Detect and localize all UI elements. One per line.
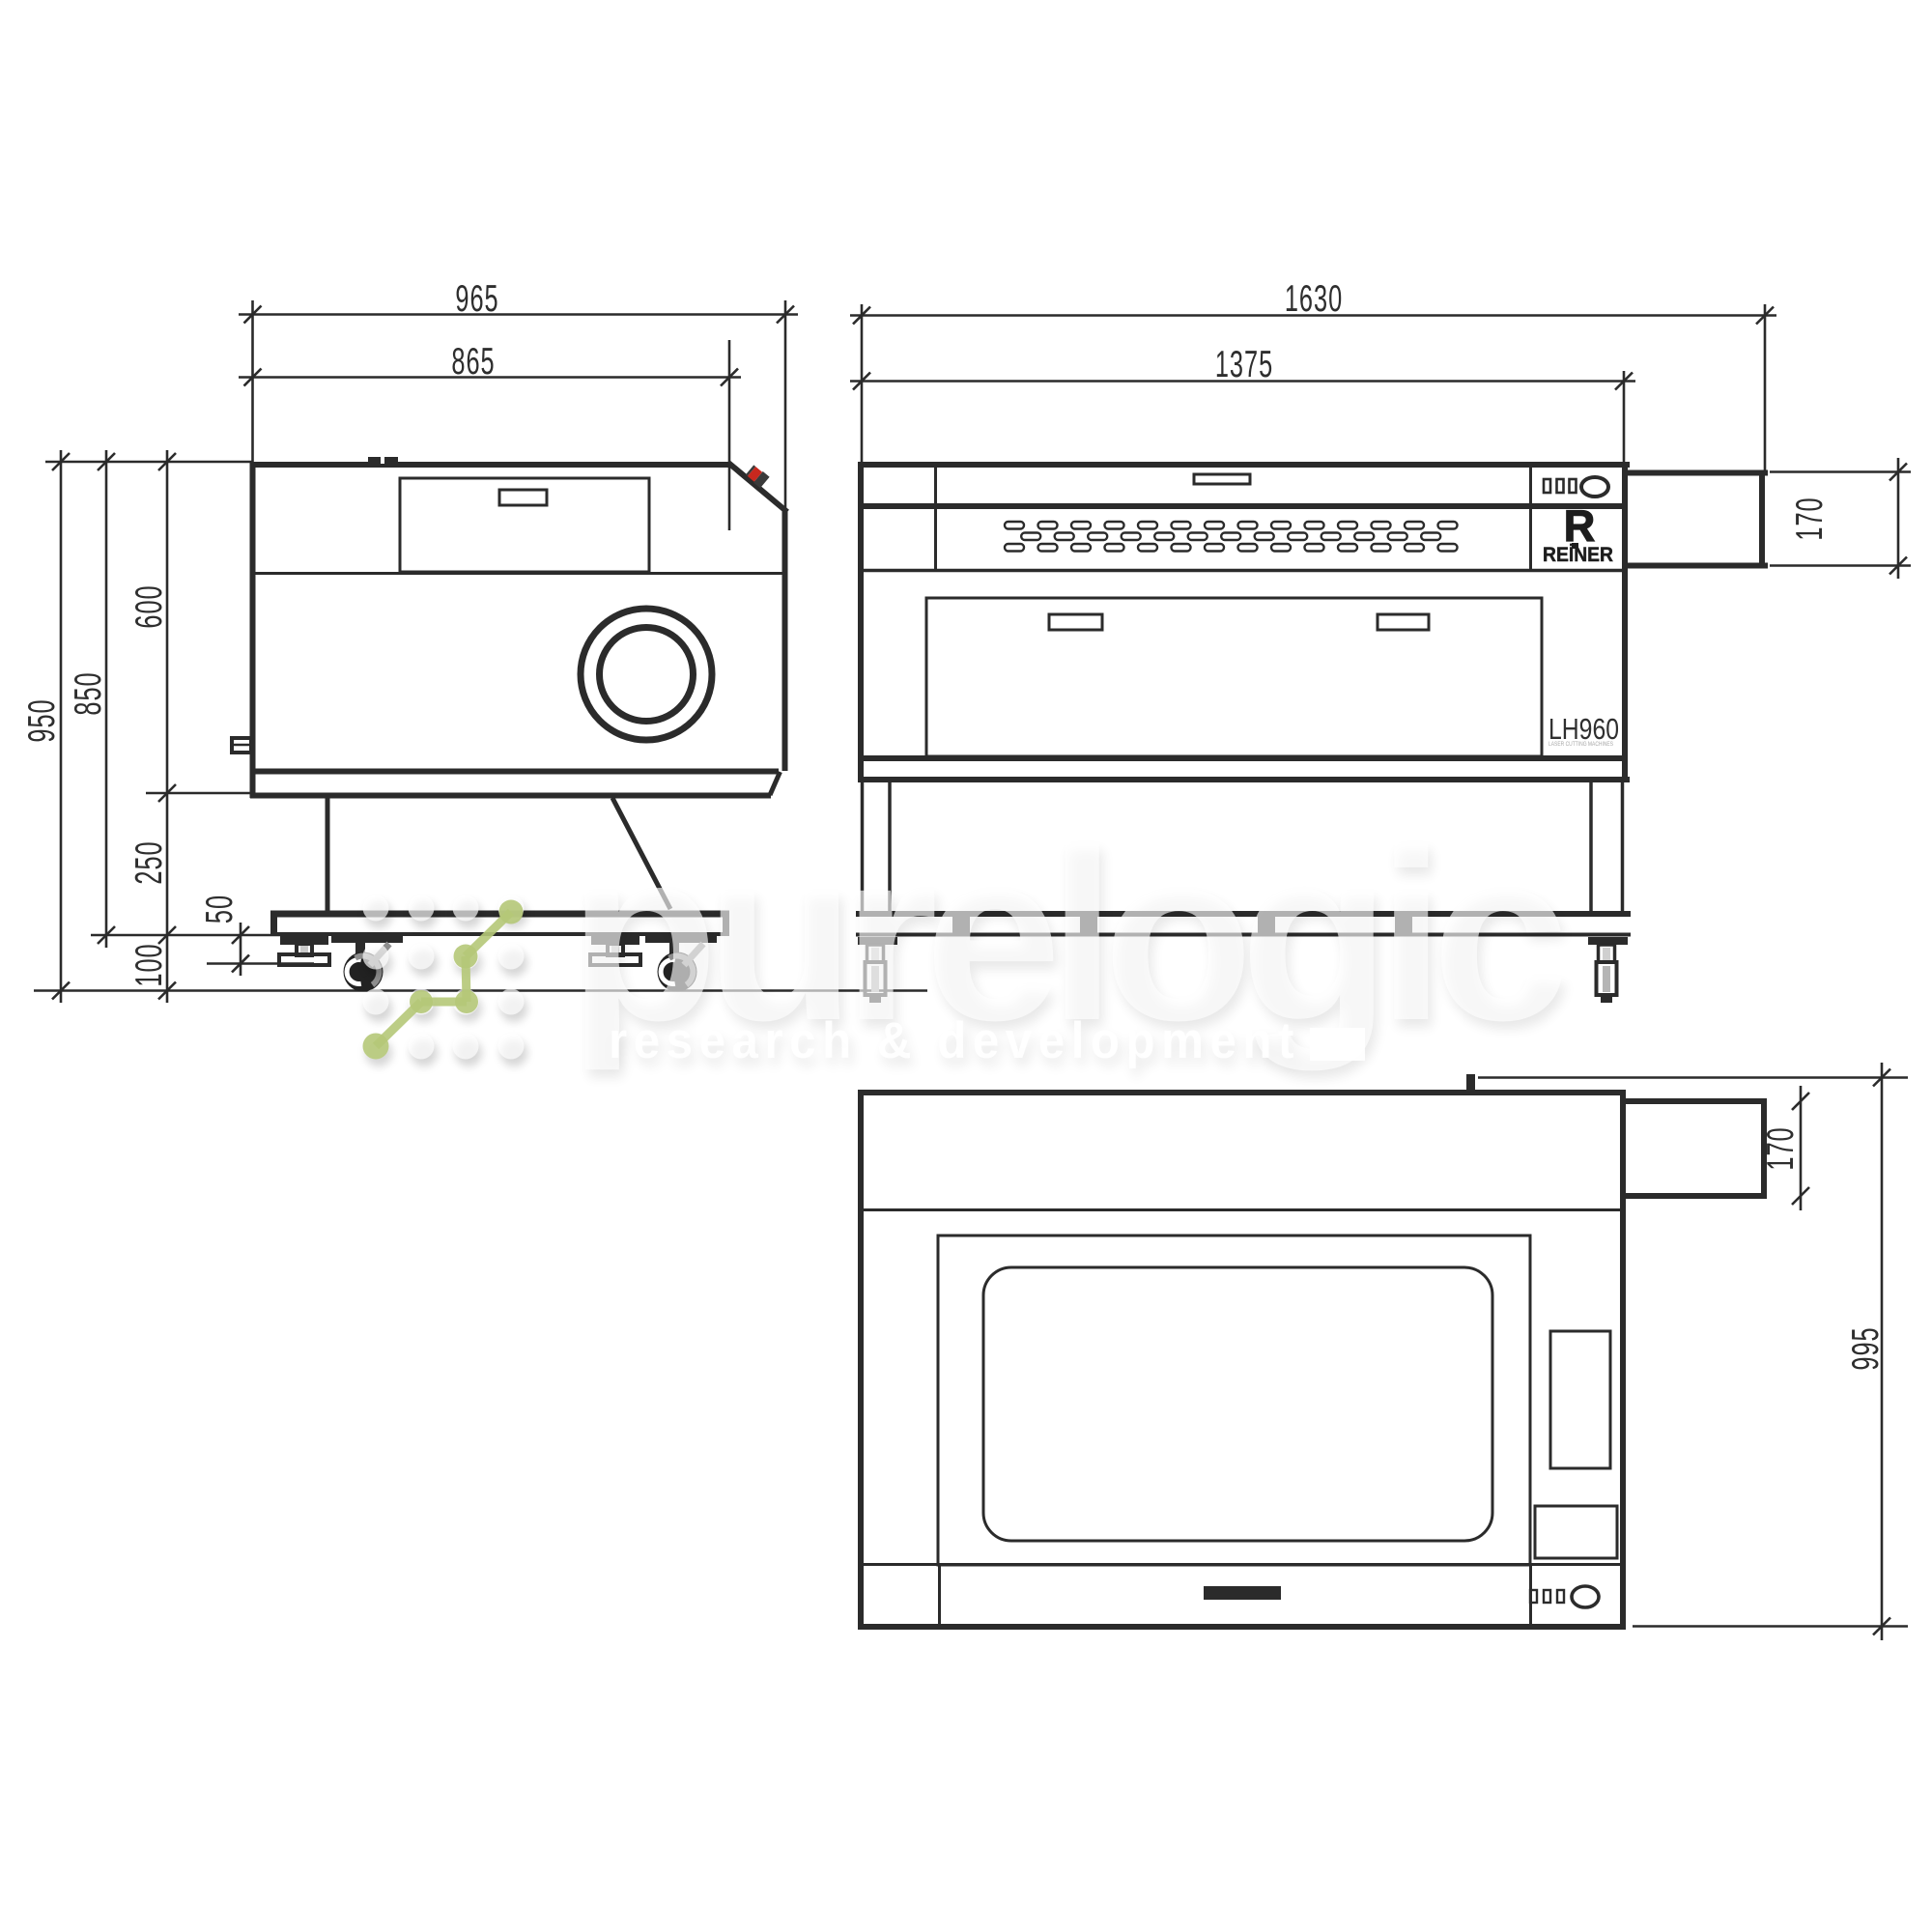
svg-text:1630: 1630 — [1285, 276, 1343, 319]
svg-text:50: 50 — [197, 895, 240, 923]
svg-text:100: 100 — [127, 943, 169, 986]
svg-text:600: 600 — [127, 584, 169, 628]
svg-text:865: 865 — [451, 339, 495, 382]
svg-text:965: 965 — [455, 276, 498, 319]
svg-text:REİNER: REİNER — [1543, 543, 1613, 566]
svg-text:250: 250 — [127, 840, 169, 884]
svg-text:995: 995 — [1843, 1326, 1886, 1370]
svg-text:170: 170 — [1787, 497, 1830, 540]
svg-text:850: 850 — [66, 671, 108, 715]
svg-text:1375: 1375 — [1215, 342, 1273, 384]
svg-text:LASER CUTTING MACHINES: LASER CUTTING MACHINES — [1548, 741, 1613, 748]
svg-text:950: 950 — [19, 698, 62, 742]
svg-text:research & development: research & development — [609, 1012, 1300, 1069]
